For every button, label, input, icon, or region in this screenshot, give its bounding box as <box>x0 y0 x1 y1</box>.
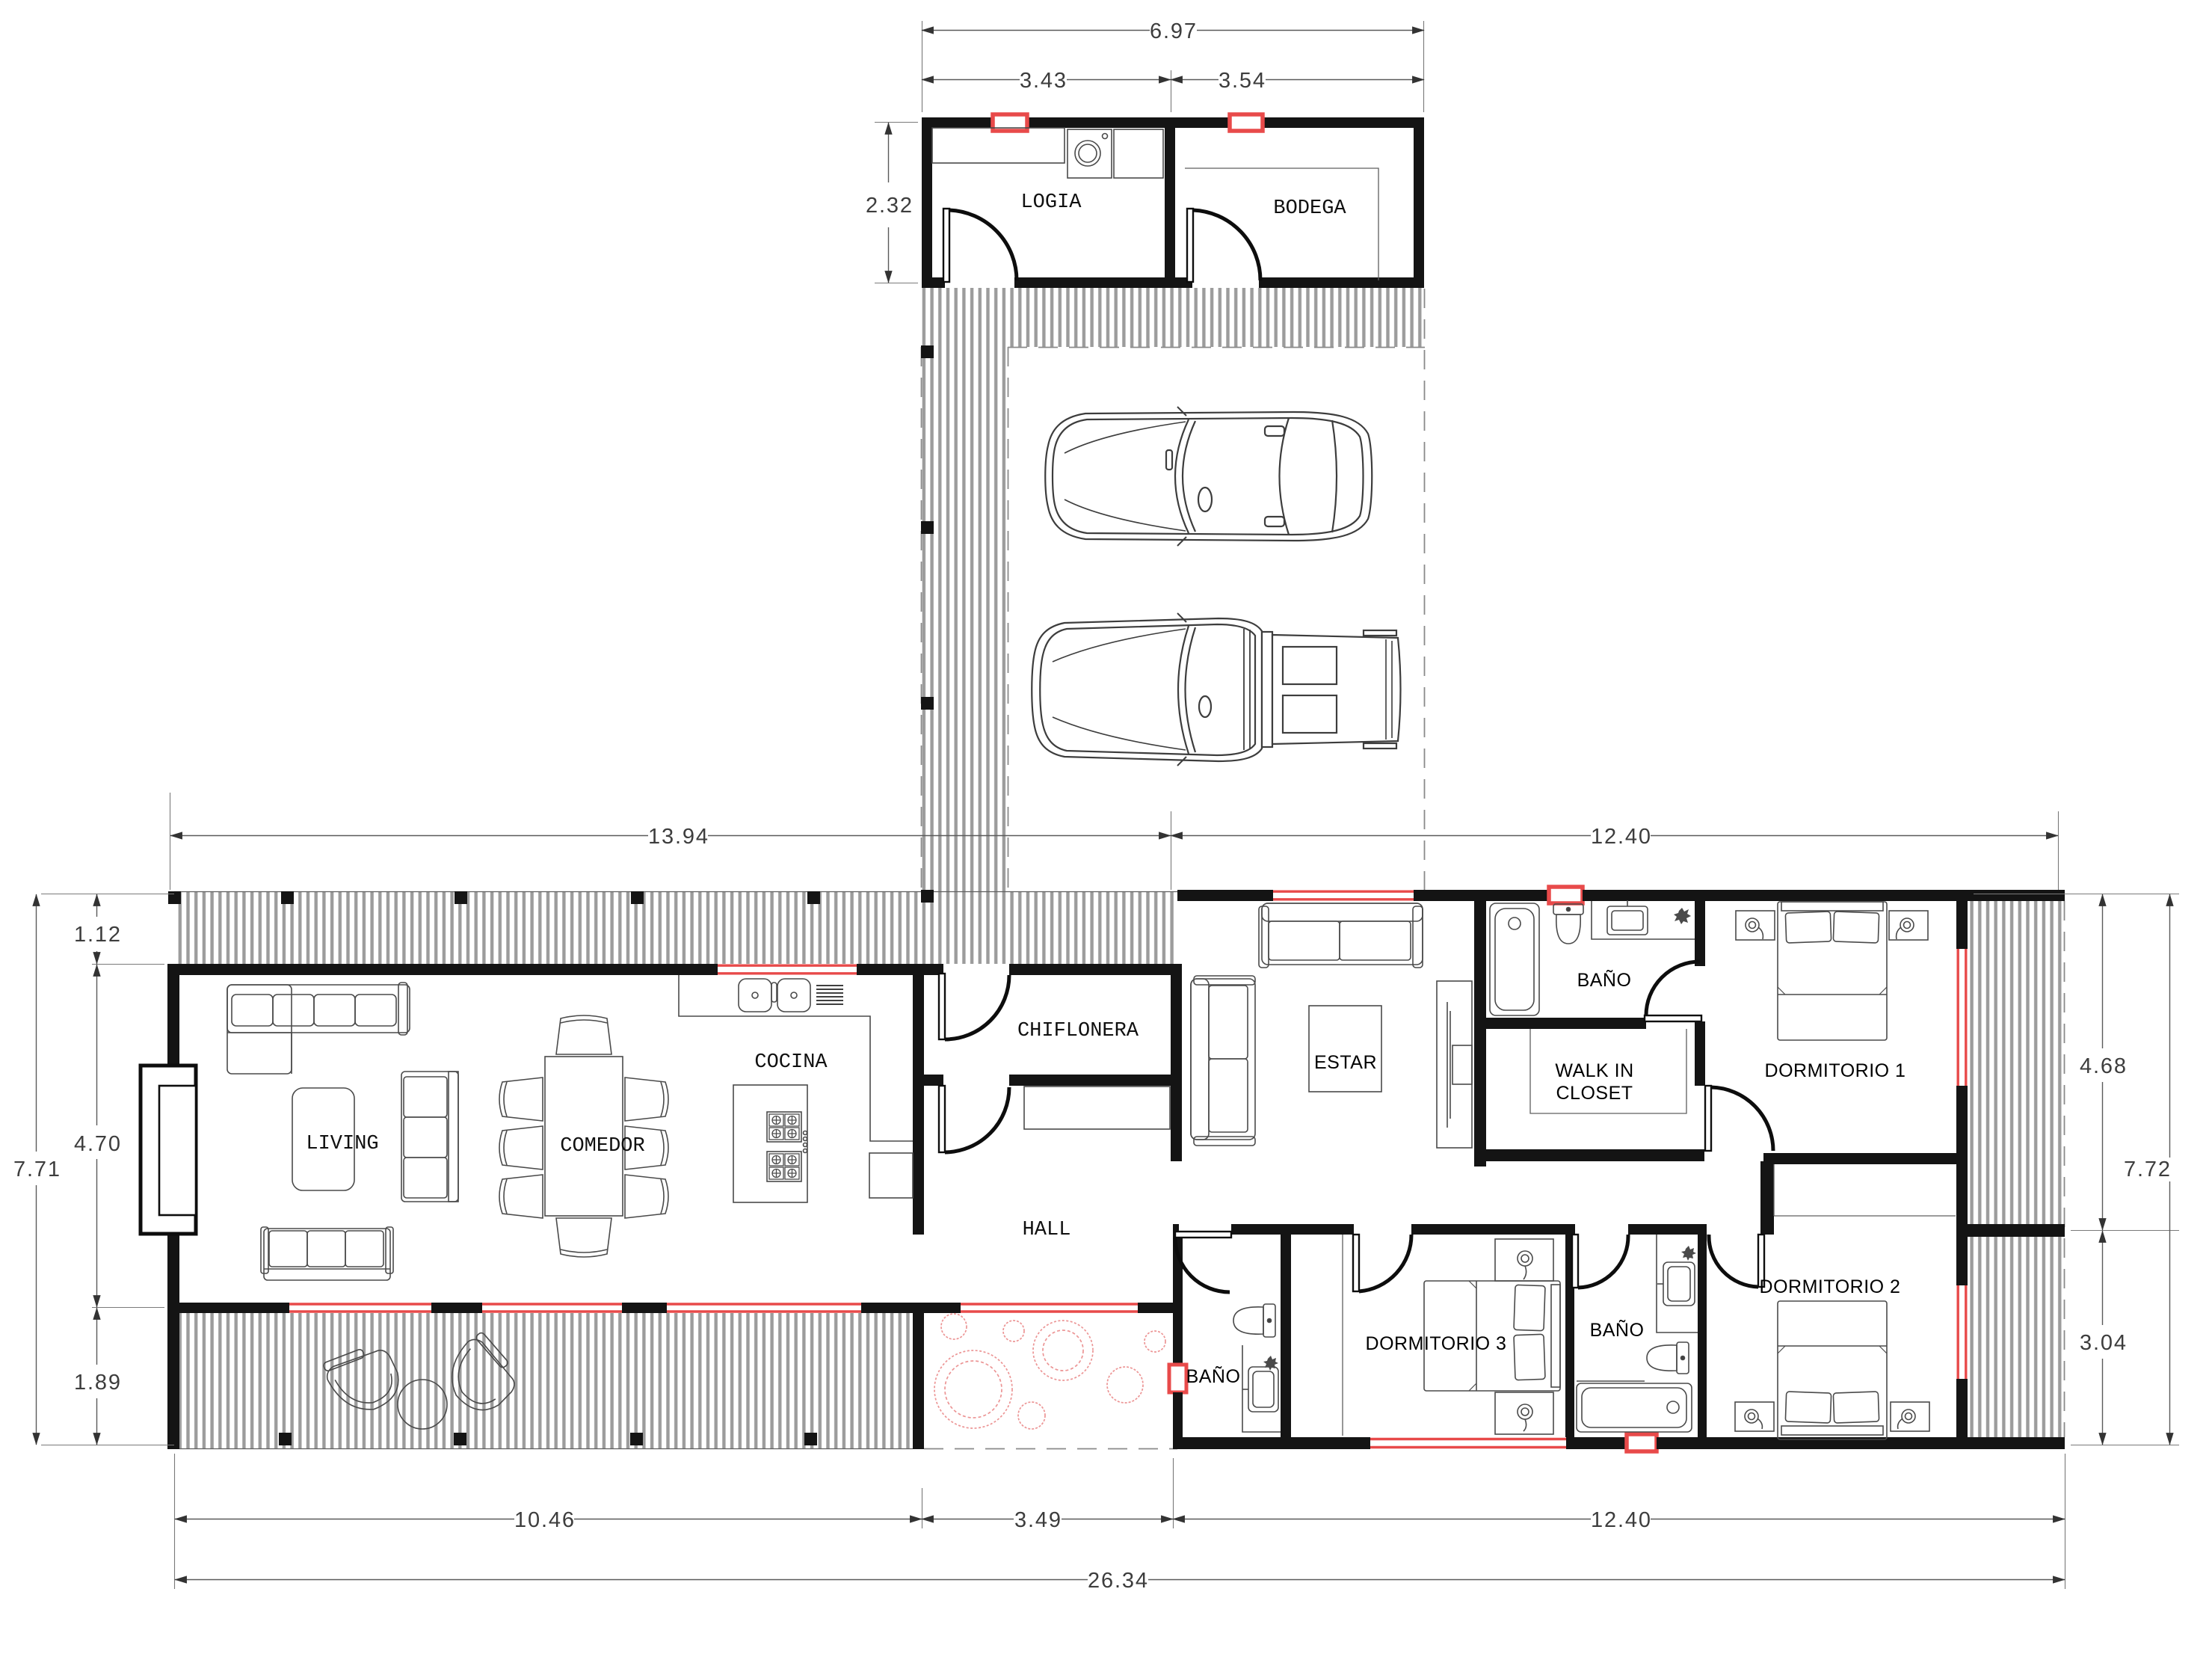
svg-text:HALL: HALL <box>1023 1219 1071 1241</box>
svg-text:3.04: 3.04 <box>2080 1331 2126 1355</box>
svg-text:2.32: 2.32 <box>866 194 912 218</box>
svg-text:COCINA: COCINA <box>754 1051 828 1074</box>
svg-text:10.46: 10.46 <box>514 1508 574 1532</box>
svg-text:COMEDOR: COMEDOR <box>560 1135 644 1158</box>
svg-text:26.34: 26.34 <box>1088 1569 1147 1593</box>
svg-text:3.49: 3.49 <box>1014 1508 1061 1532</box>
svg-text:3.54: 3.54 <box>1219 69 1265 93</box>
svg-text:4.70: 4.70 <box>74 1132 120 1156</box>
svg-text:ESTAR: ESTAR <box>1314 1052 1377 1073</box>
svg-text:BAÑO: BAÑO <box>1590 1319 1645 1341</box>
svg-text:4.68: 4.68 <box>2080 1054 2126 1078</box>
svg-text:6.97: 6.97 <box>1150 19 1196 43</box>
svg-text:CLOSET: CLOSET <box>1556 1083 1633 1104</box>
svg-text:3.43: 3.43 <box>1020 69 1066 93</box>
svg-text:DORMITORIO 3: DORMITORIO 3 <box>1366 1333 1507 1354</box>
svg-text:BAÑO: BAÑO <box>1186 1365 1241 1387</box>
svg-text:CHIFLONERA: CHIFLONERA <box>1017 1020 1139 1042</box>
svg-text:DORMITORIO 2: DORMITORIO 2 <box>1760 1276 1901 1297</box>
svg-text:13.94: 13.94 <box>648 825 708 849</box>
svg-text:1.89: 1.89 <box>74 1371 120 1395</box>
svg-text:12.40: 12.40 <box>1591 1508 1651 1532</box>
svg-text:12.40: 12.40 <box>1591 825 1651 849</box>
svg-text:7.71: 7.71 <box>13 1158 60 1181</box>
svg-text:7.72: 7.72 <box>2124 1158 2170 1181</box>
svg-text:1.12: 1.12 <box>74 923 120 947</box>
svg-text:BAÑO: BAÑO <box>1577 969 1632 991</box>
svg-text:DORMITORIO 1: DORMITORIO 1 <box>1765 1060 1906 1081</box>
svg-text:BODEGA: BODEGA <box>1273 197 1346 220</box>
svg-text:WALK IN: WALK IN <box>1555 1060 1633 1081</box>
svg-text:LOGIA: LOGIA <box>1020 191 1082 214</box>
svg-text:LIVING: LIVING <box>306 1133 378 1155</box>
